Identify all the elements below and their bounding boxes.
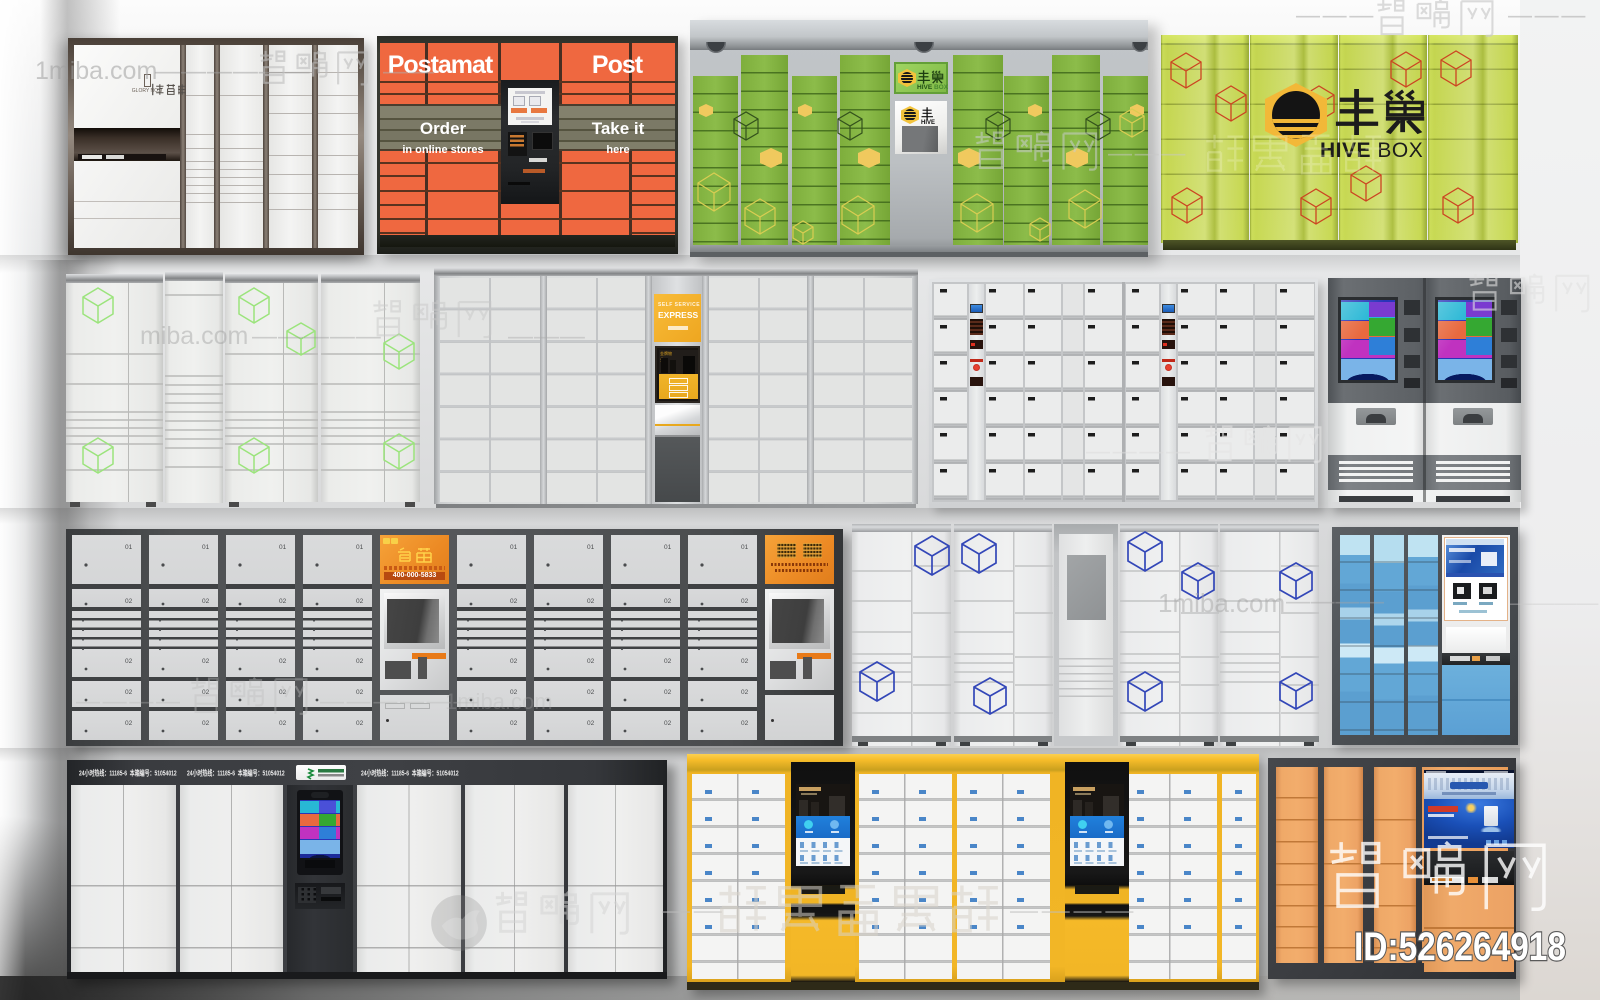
svg-text:ID:526264918: ID:526264918 xyxy=(1354,925,1566,969)
